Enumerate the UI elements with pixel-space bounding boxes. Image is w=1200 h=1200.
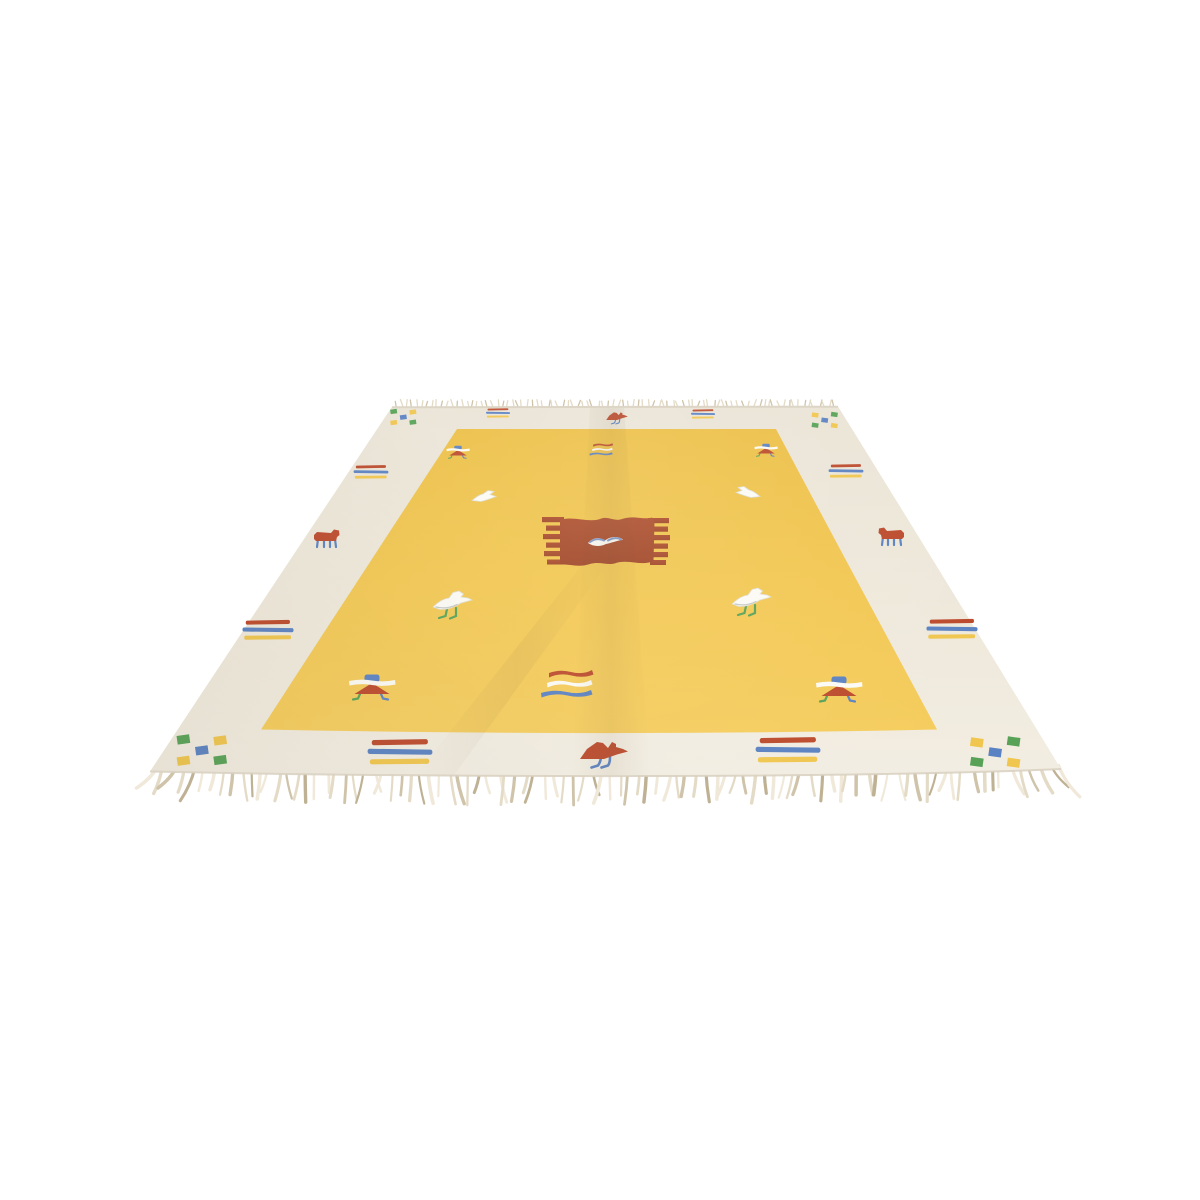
fringe-loop-top	[417, 400, 418, 407]
fringe-loop-top	[476, 402, 477, 407]
fringe-loop-top	[707, 400, 708, 407]
photo-stage	[0, 0, 1200, 1200]
fringe-loop-top	[769, 401, 770, 406]
fringe-loop-top	[649, 400, 650, 407]
fringe-loop-top	[541, 401, 542, 407]
fringe-loop-top	[498, 400, 499, 407]
top-selvedge-edge	[392, 407, 838, 408]
fringe-loop-top	[599, 401, 600, 406]
fringe-loop-top	[395, 401, 396, 406]
fringe-loop-top	[432, 400, 433, 406]
fringe-tassel	[467, 772, 468, 805]
fringe-loop-top	[674, 400, 675, 406]
fringe-loop-top	[422, 401, 423, 407]
fringe-loop-top	[527, 400, 528, 407]
fringe-tassel	[573, 773, 574, 806]
fringe-loop-top	[406, 400, 407, 407]
fringe-loop-top	[521, 400, 522, 407]
fringe-loop-top	[628, 401, 629, 406]
rug-photo	[0, 0, 1200, 1200]
fringe-loop-top	[805, 400, 806, 406]
fringe-loop-top	[638, 400, 639, 407]
fringe-loop-top	[704, 400, 705, 406]
fringe-loop-top	[608, 401, 609, 406]
fringe-loop-top	[623, 400, 624, 406]
